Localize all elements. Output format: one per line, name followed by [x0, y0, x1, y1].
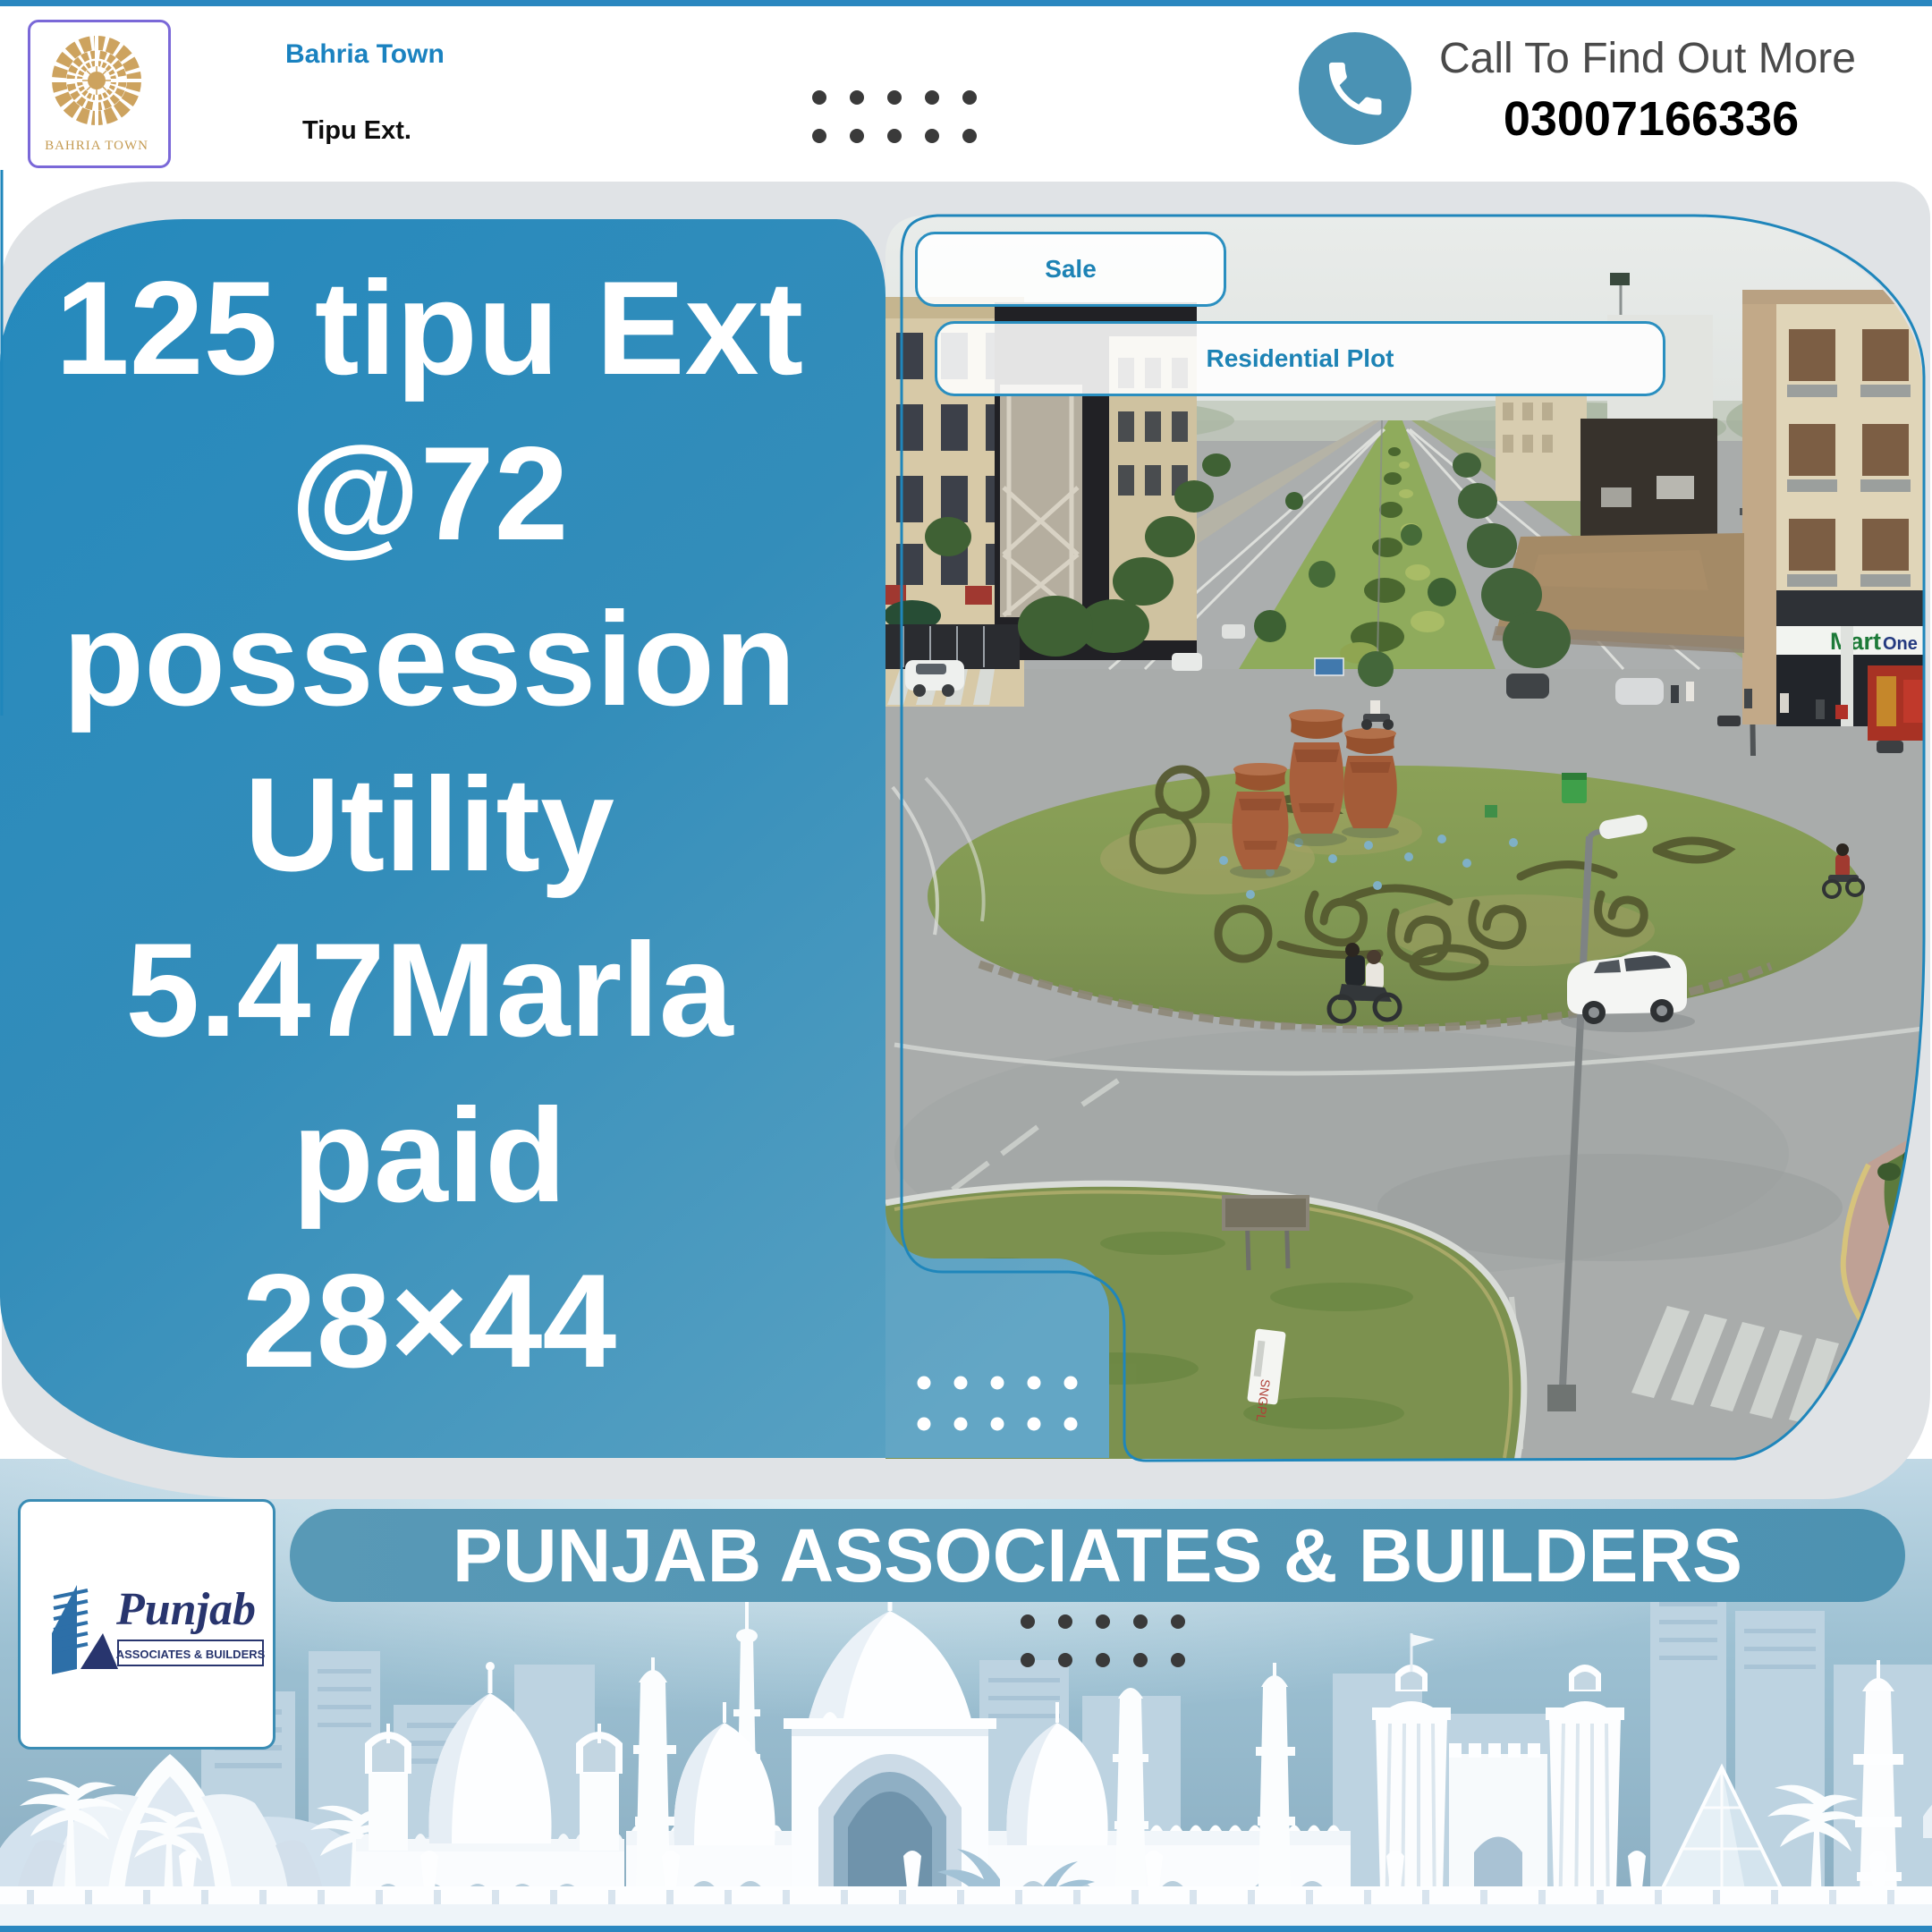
svg-text:Punjab: Punjab: [115, 1584, 256, 1635]
svg-text:ASSOCIATES & BUILDERS: ASSOCIATES & BUILDERS: [116, 1648, 266, 1661]
svg-text:Mart: Mart: [1830, 628, 1881, 655]
svg-text:BAHRIA TOWN: BAHRIA TOWN: [45, 139, 148, 153]
svg-text:One: One: [1883, 634, 1918, 654]
